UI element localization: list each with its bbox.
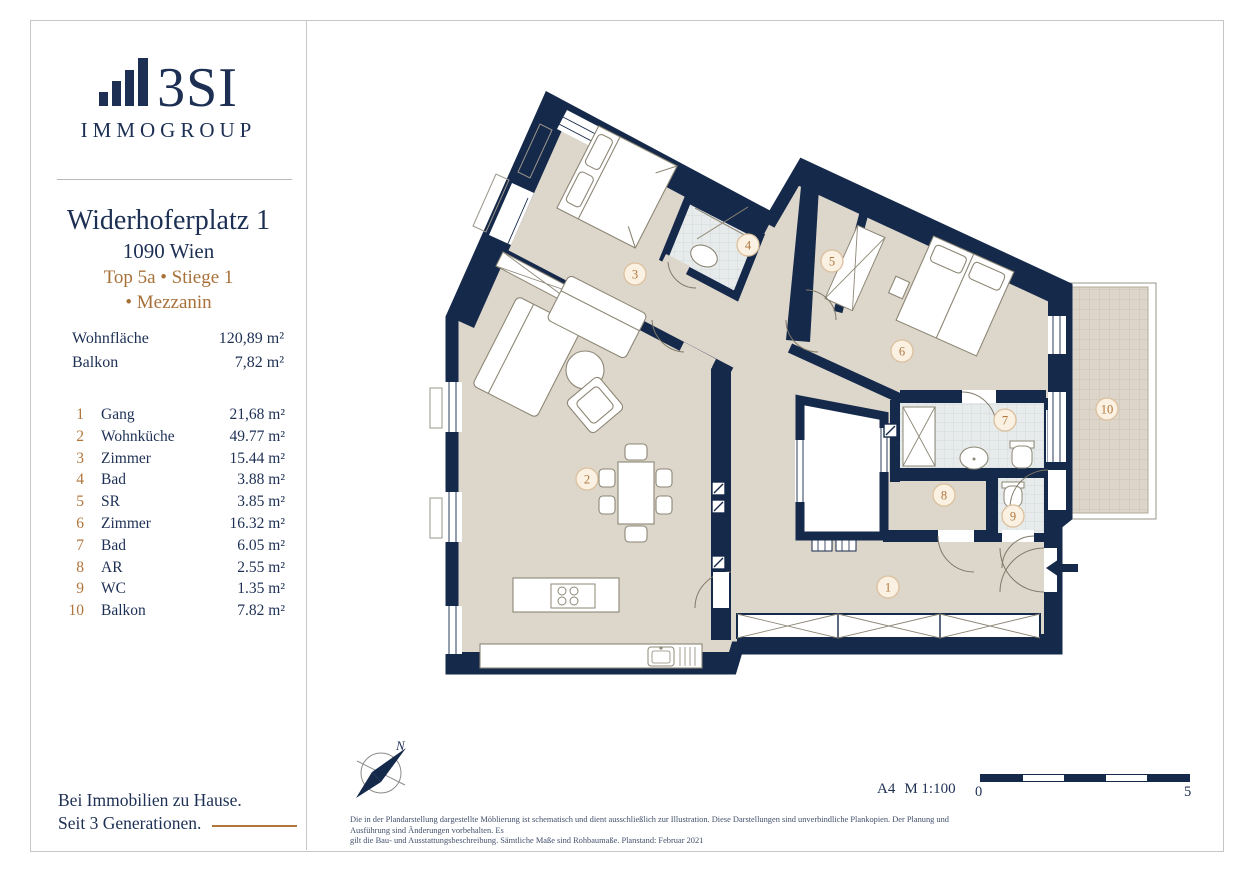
door-gap-room2 [713, 572, 729, 608]
floorplan-drawing: N 12345678910 [0, 0, 1250, 884]
sheet-size: A4 [877, 781, 895, 797]
sheet-scale-label: A4M 1:100 [877, 781, 965, 798]
compass-icon: N [356, 738, 406, 798]
room-number-label: 7 [1002, 414, 1008, 428]
scale-start-label: 0 [975, 784, 982, 801]
disclaimer-line2: gilt die Bau- und Ausstattungsbeschreibu… [350, 836, 990, 847]
room-number-label: 6 [899, 345, 905, 359]
scale-ratio: M 1:100 [904, 781, 955, 797]
living-room-windows [430, 382, 462, 654]
room-number-label: 1 [885, 581, 891, 595]
corridor-wardrobe [737, 614, 1040, 638]
room-number-label: 5 [829, 255, 835, 269]
room-number-label: 4 [745, 239, 752, 253]
room-number-label: 10 [1101, 403, 1114, 417]
stair-shaft [795, 400, 889, 536]
disclaimer-line1: Die in der Plandarstellung dargestellte … [350, 815, 990, 836]
room-number-label: 3 [632, 268, 638, 282]
room-number-label: 8 [941, 489, 947, 503]
kitchen-island [513, 578, 619, 612]
scale-bar [980, 774, 1190, 782]
kitchen-counter [480, 644, 702, 668]
svg-text:N: N [395, 738, 406, 753]
room-number-label: 2 [584, 473, 590, 487]
floorplan-page: { "brand": { "name": "3SI", "subtitle": … [0, 0, 1250, 884]
scale-end-label: 5 [1184, 784, 1191, 801]
disclaimer-text: Die in der Plandarstellung dargestellte … [350, 815, 990, 847]
room-number-label: 9 [1010, 510, 1016, 524]
